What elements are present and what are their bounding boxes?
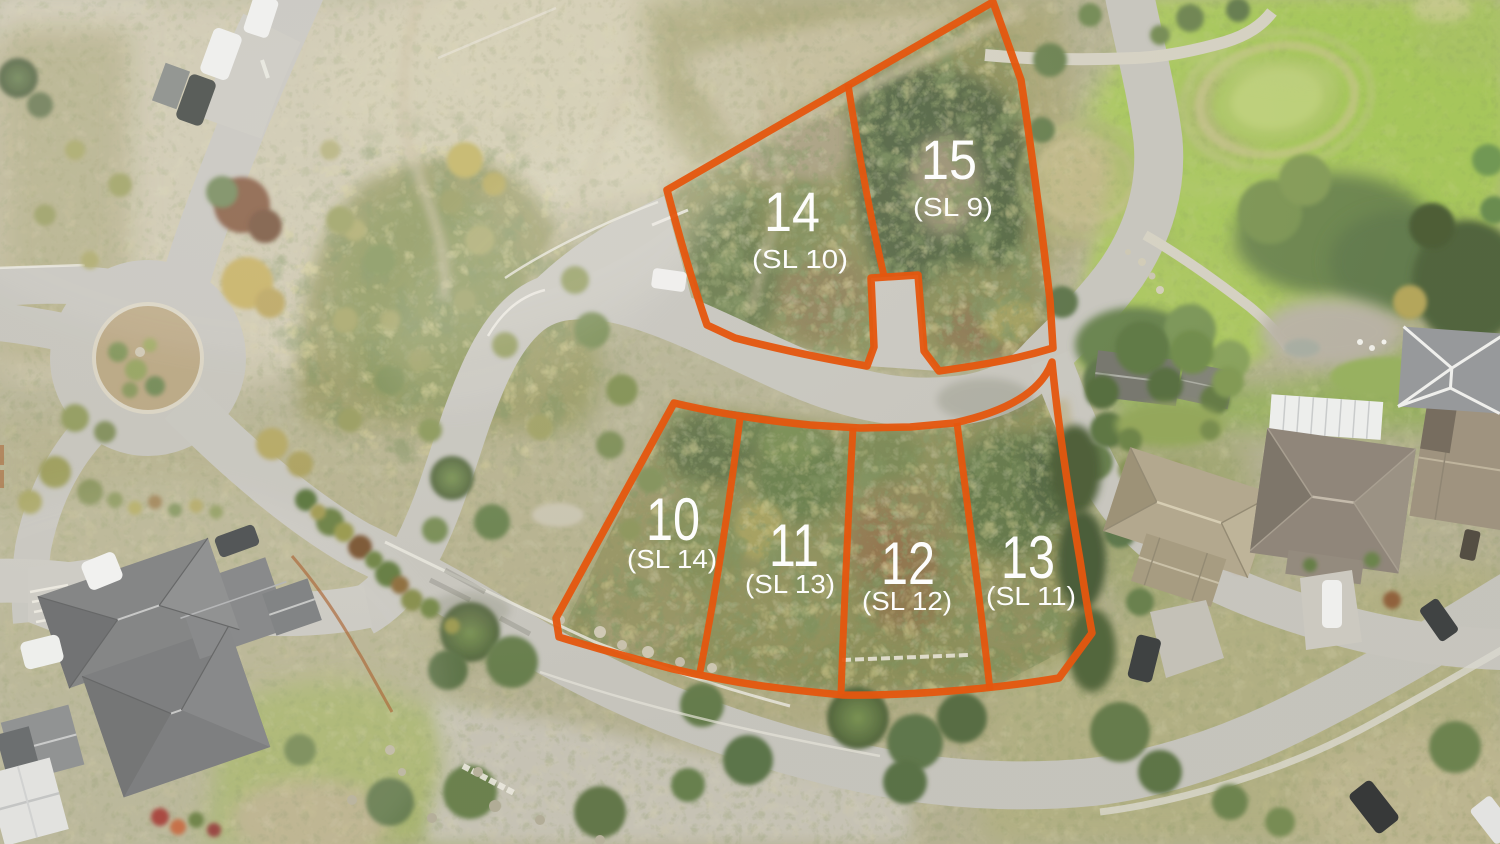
svg-text:(SL 12): (SL 12) [862,586,952,616]
svg-text:(SL 13): (SL 13) [745,569,835,599]
svg-text:14: 14 [764,180,820,243]
svg-text:(SL 14): (SL 14) [627,544,717,574]
svg-text:(SL 10): (SL 10) [752,244,848,274]
svg-text:(SL 11): (SL 11) [986,581,1076,611]
svg-text:(SL 9): (SL 9) [913,192,993,222]
svg-text:15: 15 [921,128,977,191]
svg-text:10: 10 [646,486,700,553]
